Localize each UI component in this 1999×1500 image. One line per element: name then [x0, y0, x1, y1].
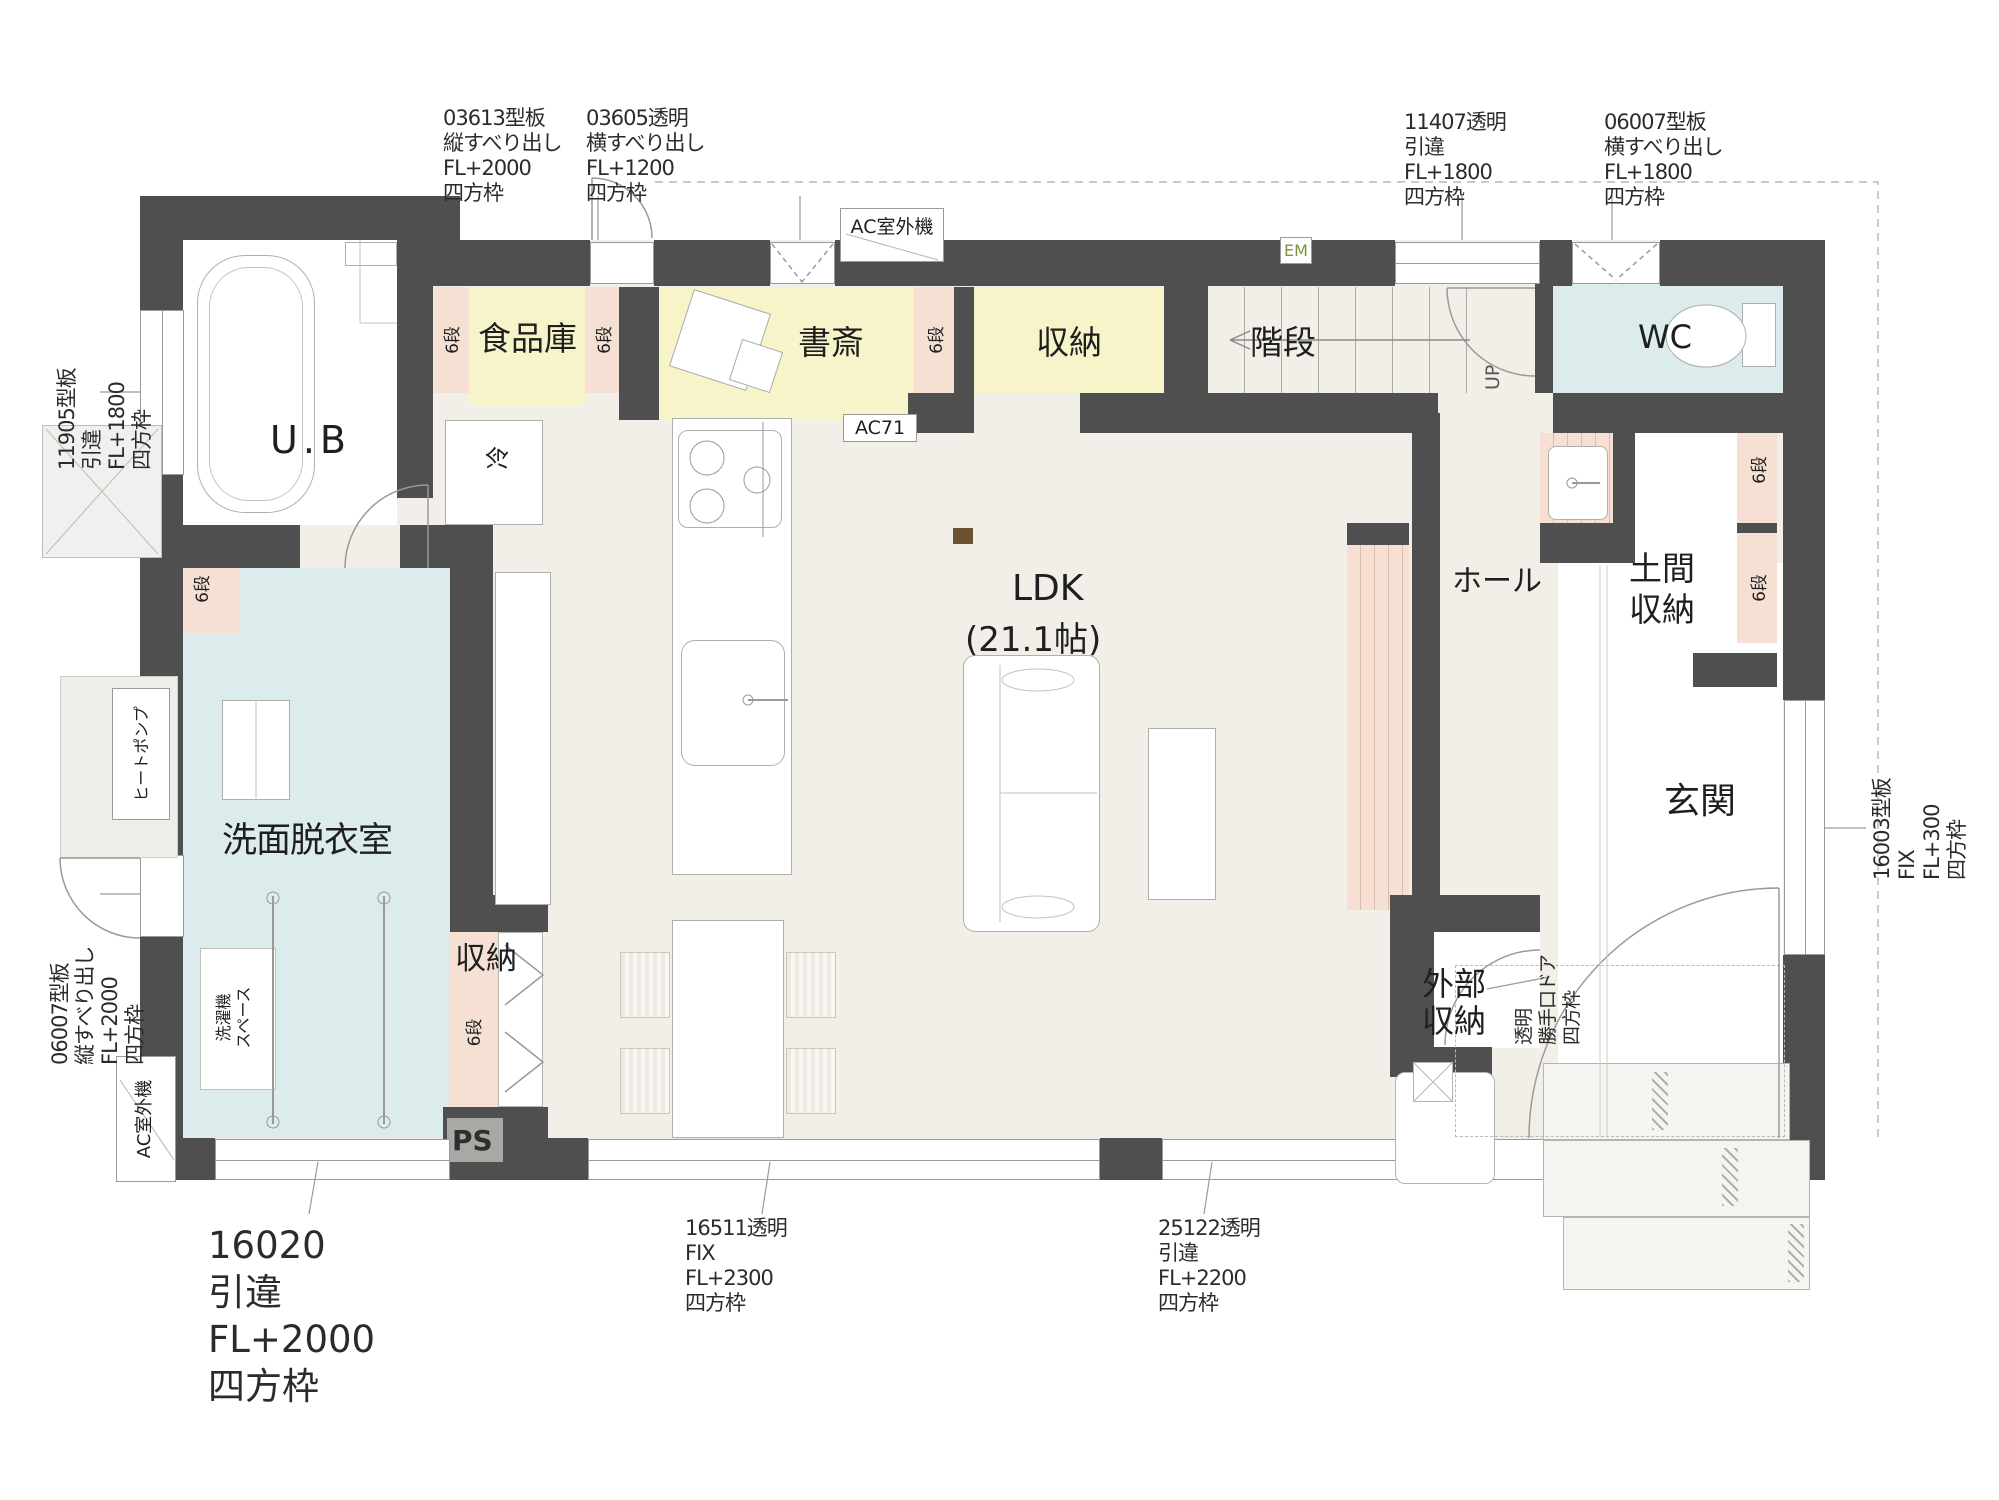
floor-plan: U.B 食品庫 書斎 収納 階段 UP WC ホール 土間 収納 玄関 LDK …	[0, 0, 1999, 1500]
ann-line: 06007型板	[1604, 110, 1723, 135]
ann-line: FL+1800	[105, 300, 130, 470]
ann-line: 11407透明	[1404, 110, 1506, 135]
annotation-03613: 03613型板 縦すべり出し FL+2000 四方枠	[443, 106, 562, 206]
annotation-katteguchi: 透明 勝手口ドア 四方枠	[1512, 915, 1584, 1045]
ann-line: 四方枠	[1404, 185, 1506, 210]
ann-line: 四方枠	[1560, 915, 1584, 1045]
doma-line2: 収納	[1612, 589, 1712, 630]
shelf-6dan-label: 6段	[590, 287, 615, 393]
room-label-ub: U.B	[270, 418, 351, 462]
shelf-6dan-label: 6段	[922, 287, 947, 393]
annotation-03605: 03605透明 横すべり出し FL+1200 四方枠	[586, 106, 705, 206]
ann-line: 25122透明	[1158, 1216, 1260, 1241]
room-label-stairs: 階段	[1250, 316, 1316, 364]
ann-line: 11905型板	[55, 300, 80, 470]
em-label: EM	[1284, 241, 1308, 260]
room-label-ext-storage: 外部 収納	[1412, 966, 1496, 1040]
ann-line: FL+1800	[1404, 160, 1506, 185]
ann-line: 03605透明	[586, 106, 705, 131]
washer-line2: スペース	[234, 950, 254, 1085]
ann-line: 四方枠	[1945, 640, 1970, 880]
annotation-11407: 11407透明 引違 FL+1800 四方枠	[1404, 110, 1506, 210]
ann-line: 横すべり出し	[1604, 135, 1723, 160]
ext-storage-line2: 収納	[1412, 1003, 1496, 1040]
ann-line: 引違	[208, 1269, 375, 1316]
annotation-16511: 16511透明 FIX FL+2300 四方枠	[685, 1216, 787, 1316]
ann-line: FL+2000	[443, 156, 562, 181]
doma-line1: 土間	[1612, 548, 1712, 589]
ps-label: PS	[452, 1124, 493, 1157]
ann-line: 四方枠	[130, 300, 155, 470]
ann-line: FL+2000	[208, 1316, 375, 1363]
annotation-06007-top: 06007型板 横すべり出し FL+1800 四方枠	[1604, 110, 1723, 210]
ann-line: 16020	[208, 1222, 375, 1269]
room-label-ldk: LDK	[1012, 568, 1083, 609]
ac-outdoor-left-label: AC室外機	[130, 1060, 156, 1178]
washer-space-label: 洗濯機 スペース	[214, 950, 254, 1085]
annotation-16020: 16020 引違 FL+2000 四方枠	[208, 1222, 375, 1410]
room-label-ldk-size: (21.1帖)	[965, 612, 1101, 661]
ann-line: FL+300	[1920, 640, 1945, 880]
ann-line: FL+2200	[1158, 1266, 1260, 1291]
ann-line: FIX	[685, 1241, 787, 1266]
heat-pump-label: ヒートポンプ	[128, 690, 152, 818]
ann-line: 16511透明	[685, 1216, 787, 1241]
ann-line: FIX	[1895, 640, 1920, 880]
ann-line: 横すべり出し	[586, 131, 705, 156]
annotation-11905: 11905型板 引違 FL+1800 四方枠	[55, 300, 155, 470]
stairs-up-label: UP	[1482, 320, 1504, 390]
ac71-label: AC71	[855, 417, 905, 439]
ann-line: 16003型板	[1870, 640, 1895, 880]
ann-line: 透明	[1512, 915, 1536, 1045]
em-chip: EM	[1280, 237, 1312, 264]
room-label-genkan: 玄関	[1664, 772, 1736, 824]
ann-line: 四方枠	[443, 181, 562, 206]
shelf-6dan-label: 6段	[438, 287, 463, 393]
ann-line: 勝手口ドア	[1536, 915, 1560, 1045]
ann-line: 引違	[1158, 1241, 1260, 1266]
room-label-storage-top: 収納	[1036, 316, 1102, 364]
ann-line: 四方枠	[123, 850, 148, 1065]
shelf-6dan-label: 6段	[188, 545, 213, 633]
fridge-label: 冷	[478, 415, 513, 500]
room-label-hall: ホール	[1452, 556, 1542, 600]
ann-line: FL+1200	[586, 156, 705, 181]
ann-line: FL+2300	[685, 1266, 787, 1291]
annotation-25122: 25122透明 引違 FL+2200 四方枠	[1158, 1216, 1260, 1316]
ac71-chip: AC71	[843, 414, 917, 442]
ann-line: 四方枠	[685, 1291, 787, 1316]
ann-line: 03613型板	[443, 106, 562, 131]
ann-line: 四方枠	[586, 181, 705, 206]
ext-storage-line1: 外部	[1412, 966, 1496, 1003]
shelf-6dan-label: 6段	[1745, 417, 1770, 523]
ann-line: 縦すべり出し	[443, 131, 562, 156]
ann-line: FL+2000	[98, 850, 123, 1065]
ann-line: 四方枠	[1158, 1291, 1260, 1316]
annotation-16003: 16003型板 FIX FL+300 四方枠	[1870, 640, 1970, 880]
ann-line: 四方枠	[208, 1363, 375, 1410]
ann-line: 四方枠	[1604, 185, 1723, 210]
annotation-06007-left: 06007型板 縦すべり出し FL+2000 四方枠	[48, 850, 148, 1065]
ac-outdoor-top-label: AC室外機	[840, 212, 944, 239]
room-label-doma: 土間 収納	[1612, 548, 1712, 630]
room-label-washroom: 洗面脱衣室	[222, 812, 392, 863]
shelf-6dan-label: 6段	[460, 970, 485, 1095]
ann-line: 引違	[80, 300, 105, 470]
room-label-pantry: 食品庫	[478, 312, 577, 360]
washer-line1: 洗濯機	[214, 950, 234, 1085]
room-label-study: 書斎	[798, 316, 864, 364]
ann-line: 縦すべり出し	[73, 850, 98, 1065]
ann-line: FL+1800	[1604, 160, 1723, 185]
ann-line: 引違	[1404, 135, 1506, 160]
shelf-6dan-label: 6段	[1745, 533, 1770, 643]
room-label-wc: WC	[1638, 318, 1692, 356]
ann-line: 06007型板	[48, 850, 73, 1065]
